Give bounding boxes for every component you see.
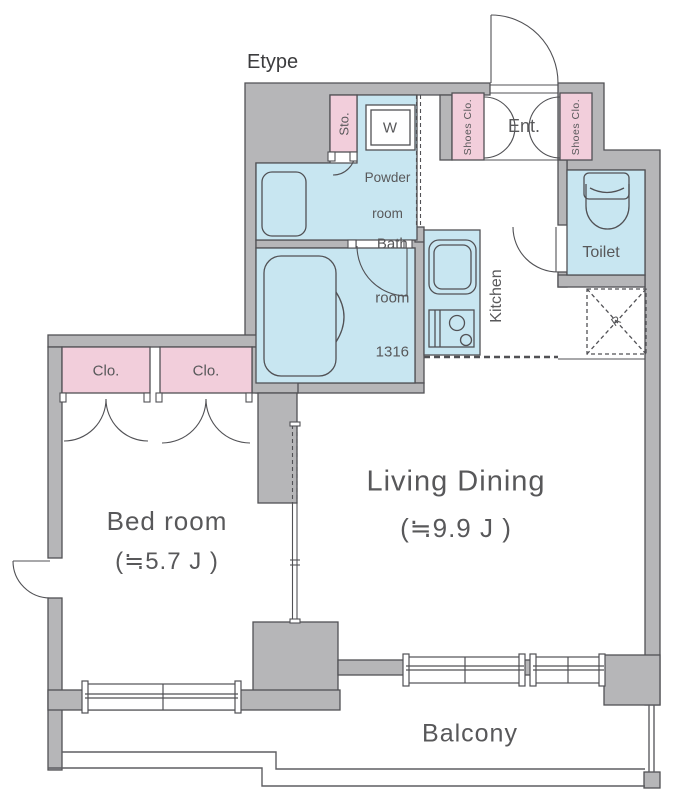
shoes-closet-left-label: Shoes Clo. (463, 99, 474, 155)
living-window-2 (530, 654, 605, 686)
entrance-door (490, 15, 558, 93)
closet-doors (60, 393, 252, 443)
washer-label: W (383, 121, 397, 136)
bedroom-door (13, 561, 50, 598)
wall-entrance-left (440, 95, 452, 160)
plan-title: Etype (247, 52, 298, 72)
shoes-closet-right-label: Shoes Clo. (571, 99, 582, 155)
bedroom-window (82, 681, 241, 713)
toilet-door (513, 227, 558, 272)
bath-room-label: Bath room 1316 (359, 204, 410, 393)
floor-plan: Etype Sto. W Powder room Shoes Clo. Ent.… (0, 0, 674, 800)
bed-room-label: Bed room (107, 508, 228, 534)
toilet-label: Toilet (582, 245, 619, 261)
closet1-label: Clo. (93, 364, 120, 379)
closet2-label: Clo. (193, 364, 220, 379)
living-window-1 (403, 654, 525, 686)
balcony-outline (48, 705, 654, 786)
entrance-label: Ent. (508, 117, 540, 135)
living-dining-size: (≒9.9 J ) (400, 515, 512, 541)
kitchen-label: Kitchen (489, 269, 505, 322)
storage-label: Sto. (338, 112, 351, 135)
balcony-label: Balcony (422, 722, 518, 747)
bed-room-size: (≒5.7 J ) (115, 550, 219, 574)
living-dining-label: Living Dining (366, 468, 545, 497)
